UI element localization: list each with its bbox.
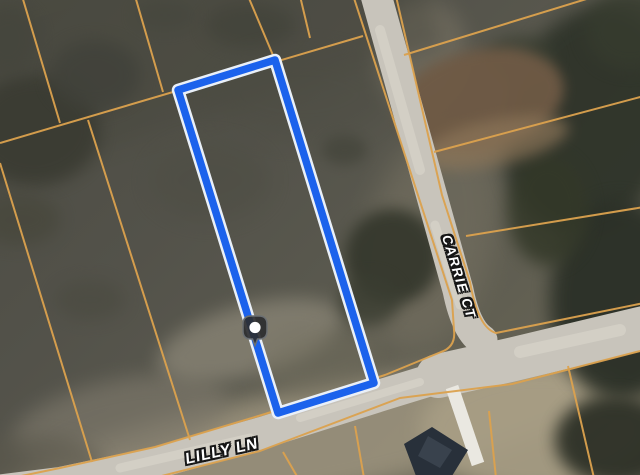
parcel-line bbox=[355, 426, 364, 475]
parcel-line bbox=[88, 120, 190, 440]
satellite-map[interactable]: CARRIE CT LILLY LN bbox=[0, 0, 640, 475]
parcel-outline-casing bbox=[178, 60, 374, 413]
parcel-line bbox=[135, 0, 163, 92]
parcel-line bbox=[489, 411, 496, 475]
pin-dot bbox=[249, 322, 260, 333]
parcel-line bbox=[434, 96, 640, 152]
parcel-line bbox=[300, 0, 310, 38]
parcel-line bbox=[0, 163, 92, 462]
parcel-line bbox=[568, 366, 594, 475]
parcel-line bbox=[283, 452, 298, 475]
parcel-line bbox=[248, 0, 275, 60]
parcel-line bbox=[404, 0, 593, 55]
parcel-line bbox=[22, 0, 60, 123]
highlighted-parcel-outline[interactable] bbox=[178, 60, 374, 413]
parcel-line bbox=[466, 207, 640, 236]
location-pin-icon[interactable] bbox=[243, 316, 267, 346]
parcel-outline-stroke bbox=[178, 60, 374, 413]
